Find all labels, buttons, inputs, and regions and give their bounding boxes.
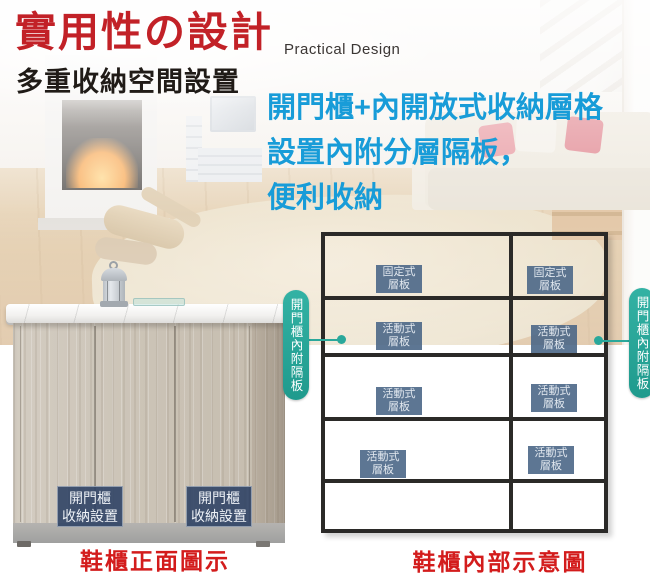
- door-label-right: 開門櫃 收納設置: [186, 486, 252, 527]
- door-label-left: 開門櫃 收納設置: [57, 486, 123, 527]
- grid-shelf-line: [325, 417, 604, 421]
- shelf-label-line: 活動式: [383, 323, 416, 336]
- page-tagline: 多重收納空間設置: [16, 60, 240, 99]
- shelf-label-movable: 活動式 層板: [528, 446, 574, 474]
- lantern-body: [103, 281, 125, 302]
- interior-view-caption: 鞋櫃內部示意圖: [370, 543, 630, 574]
- shelf-label-line: 層板: [539, 280, 561, 293]
- door-label-line: 收納設置: [62, 507, 118, 525]
- page-subtitle-en: Practical Design: [284, 41, 400, 58]
- shelf-label-line: 活動式: [538, 385, 571, 398]
- cabinet-door-gap: [174, 326, 176, 522]
- description-line-2: 設置內附分層隔板，: [267, 131, 647, 176]
- lantern-base: [100, 301, 128, 307]
- description-line-1: 開門櫃+內開放式收納層格: [267, 86, 647, 131]
- shelf-label-movable: 活動式 層板: [360, 450, 406, 478]
- shelf-label-line: 層板: [372, 464, 394, 477]
- lantern-dome: [101, 268, 127, 281]
- cabinet-side-panel: [252, 323, 285, 525]
- description-text: 開門櫃+內開放式收納層格 設置內附分層隔板， 便利收納: [267, 86, 647, 221]
- cabinet-door-edge: [20, 326, 21, 522]
- door-label-line: 收納設置: [191, 507, 247, 525]
- door-label-line: 開門櫃: [69, 489, 111, 507]
- description-line-3: 便利收納: [267, 176, 647, 221]
- shelf-label-movable: 活動式 層板: [376, 387, 422, 415]
- poster-canvas: 實用性の設計 Practical Design 多重收納空間設置 開門櫃+內開放…: [0, 0, 650, 574]
- cabinet-foot: [17, 541, 31, 547]
- side-label-right: 開門櫃內附隔板: [629, 288, 650, 398]
- callout-dot: [337, 335, 346, 344]
- shelf-label-line: 活動式: [383, 388, 416, 401]
- door-label-line: 開門櫃: [198, 489, 240, 507]
- callout-line: [306, 339, 340, 341]
- shelf-label-movable: 活動式 層板: [376, 322, 422, 350]
- side-label-left: 開門櫃內附隔板: [283, 290, 309, 400]
- shelf-label-line: 活動式: [538, 326, 571, 339]
- callout-dot: [594, 336, 603, 345]
- shelf-label-line: 層板: [540, 460, 562, 473]
- grid-column-divider: [509, 236, 513, 529]
- shelf-label-line: 層板: [543, 398, 565, 411]
- shelf-label-line: 層板: [388, 336, 410, 349]
- glass-tray: [133, 298, 185, 306]
- grid-shelf-line: [325, 353, 604, 357]
- shelf-label-fixed: 固定式 層板: [376, 265, 422, 293]
- grid-shelf-line: [325, 296, 604, 300]
- front-view-caption: 鞋櫃正面圖示: [40, 542, 270, 574]
- callout-line: [600, 340, 631, 342]
- shelf-label-fixed: 固定式 層板: [527, 266, 573, 294]
- shelf-label-line: 固定式: [383, 266, 416, 279]
- page-title: 實用性の設計: [15, 8, 273, 56]
- cabinet-marble-top: [6, 304, 290, 323]
- shelf-label-line: 層板: [388, 401, 410, 414]
- shelf-label-movable: 活動式 層板: [531, 384, 577, 412]
- shelf-label-line: 活動式: [535, 447, 568, 460]
- shelf-label-line: 活動式: [367, 451, 400, 464]
- shelf-label-line: 固定式: [534, 267, 567, 280]
- shelf-label-line: 層板: [388, 279, 410, 292]
- grid-shelf-line: [325, 479, 604, 483]
- shelf-label-line: 層板: [543, 339, 565, 352]
- shelf-label-movable: 活動式 層板: [531, 325, 577, 353]
